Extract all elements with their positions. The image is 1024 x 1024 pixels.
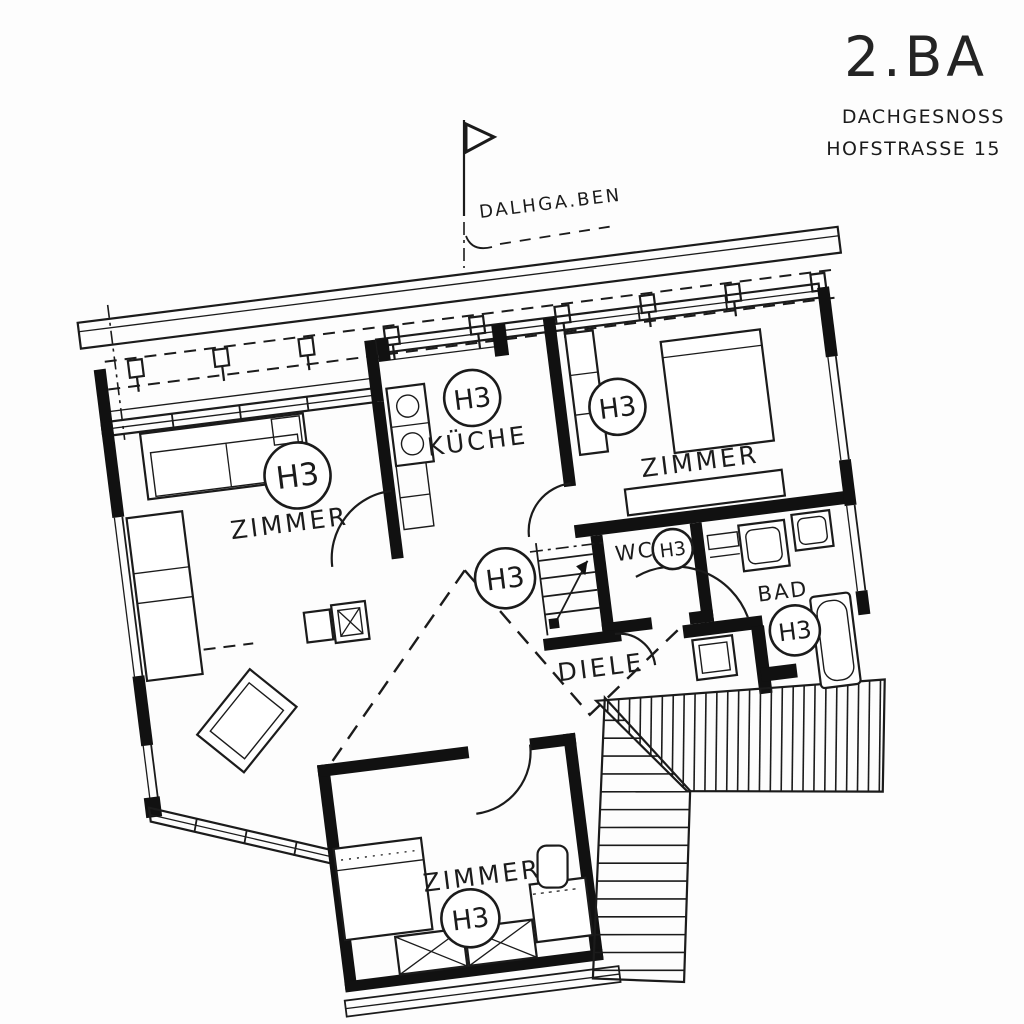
bed-bottom <box>334 838 433 940</box>
title-block: 2.BA DACHGESNOSS HOFSTRASSE 15 <box>826 25 1005 160</box>
unit-tag-zimmer-right: H3 <box>597 391 638 426</box>
label-diele: DIELE <box>556 648 646 688</box>
label-wc: WC <box>614 537 656 566</box>
shower-sink <box>738 520 789 571</box>
unit-tag-bad: H3 <box>777 615 814 647</box>
right-room-door-arc <box>523 483 577 537</box>
unit-tag-diele: H3 <box>484 560 527 598</box>
floor-plan-canvas: H3 ZIMMER H3 KÜCHE H3 ZIMMER H3 DIELE WC… <box>0 0 1024 1024</box>
unit-tag-zimmer-bottom: H3 <box>450 902 491 937</box>
unit-tag-kueche: H3 <box>452 382 493 417</box>
boundary-label: DALHGA.BEN <box>478 185 623 223</box>
project-title: 2.BA <box>844 25 988 89</box>
side-table <box>304 610 334 643</box>
slanted-window-wall <box>149 785 337 887</box>
armchair <box>197 669 296 772</box>
label-kueche: KÜCHE <box>426 420 530 461</box>
unit-tag-wc: H3 <box>658 537 687 562</box>
survey-flag-marker: DALHGA.BEN <box>464 120 623 268</box>
shelf-unit <box>127 511 203 681</box>
flag-icon <box>466 124 494 152</box>
left-room-furniture <box>116 409 384 783</box>
floor-plan-page: H3 ZIMMER H3 KÜCHE H3 ZIMMER H3 DIELE WC… <box>0 0 1024 1024</box>
bed <box>661 329 774 453</box>
title-line1: DACHGESNOSS <box>842 106 1005 128</box>
unit-tag-zimmer-left: H3 <box>274 456 321 497</box>
washer <box>692 635 737 680</box>
right-exterior-wall <box>817 286 870 615</box>
label-zimmer-left: ZIMMER <box>229 502 351 546</box>
title-line2: HOFSTRASSE 15 <box>826 138 1001 160</box>
bottom-room-door-arc <box>469 744 538 813</box>
plan-rotated-group: H3 ZIMMER H3 KÜCHE H3 ZIMMER H3 DIELE WC… <box>76 213 930 1024</box>
label-bad: BAD <box>756 576 810 606</box>
